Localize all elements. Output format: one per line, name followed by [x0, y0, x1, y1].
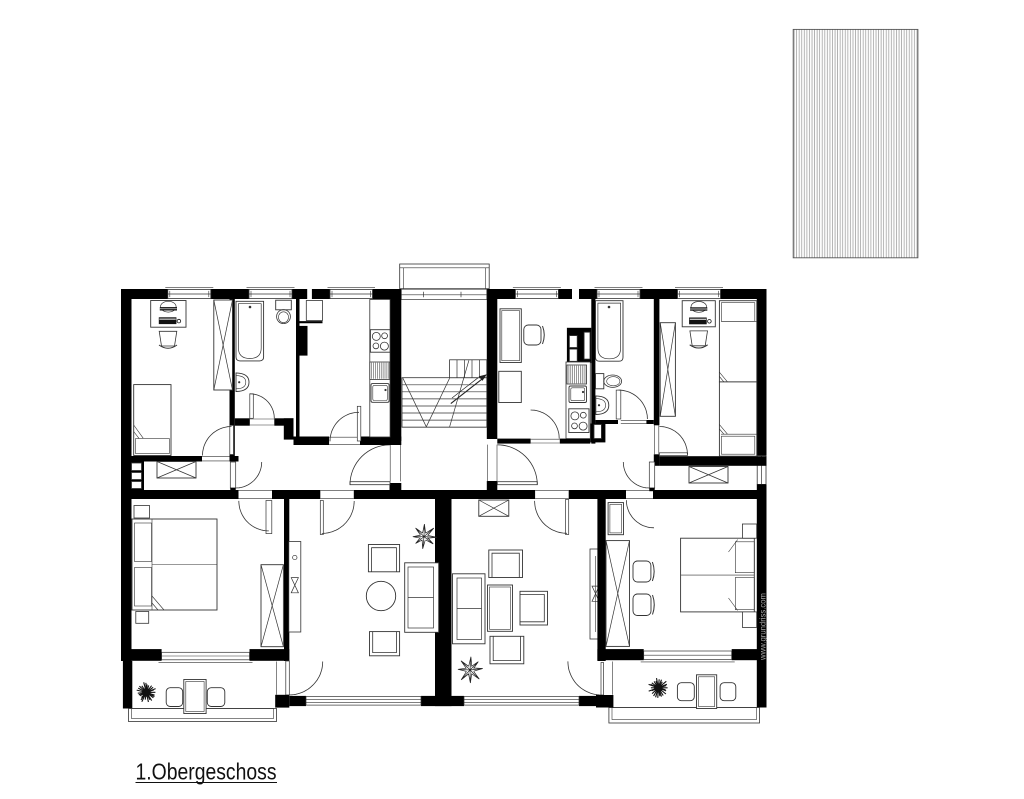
svg-text:www.grundriss.com: www.grundriss.com — [759, 593, 768, 661]
svg-text:1.Obergeschoss: 1.Obergeschoss — [136, 759, 277, 785]
